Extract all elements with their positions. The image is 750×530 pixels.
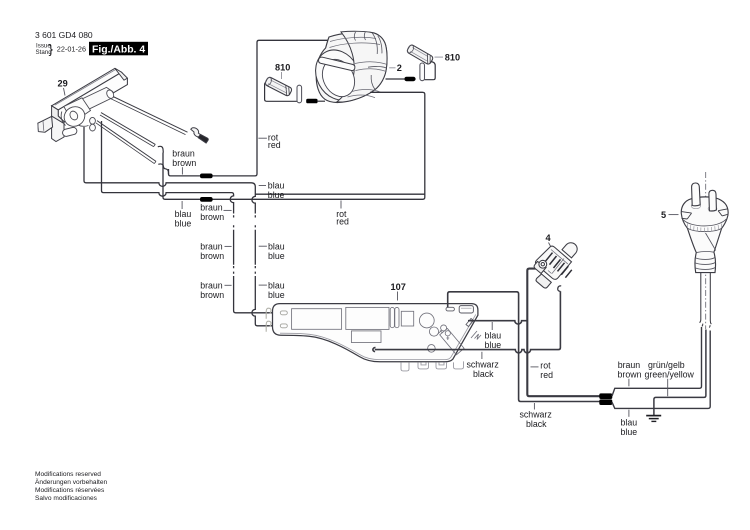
svg-text:braun: braun: [172, 149, 195, 159]
svg-text:107: 107: [391, 282, 406, 292]
svg-text:blue: blue: [175, 219, 192, 229]
svg-text:braun: braun: [200, 280, 223, 290]
svg-text:810: 810: [275, 63, 290, 73]
svg-text:Modifications réservées: Modifications réservées: [35, 487, 105, 494]
svg-text:red: red: [268, 140, 281, 150]
svg-text:29: 29: [58, 78, 68, 88]
svg-text:braun: braun: [200, 203, 223, 213]
svg-text:blau: blau: [621, 417, 638, 427]
svg-text:rot: rot: [540, 360, 551, 370]
svg-text:blue: blue: [268, 251, 285, 261]
svg-text:brown: brown: [200, 290, 224, 300]
svg-text:blau: blau: [268, 280, 285, 290]
svg-text:blau: blau: [485, 330, 502, 340]
svg-text:Fig./Abb. 4: Fig./Abb. 4: [92, 44, 145, 55]
svg-text:810: 810: [445, 53, 460, 63]
svg-text:blau: blau: [268, 241, 285, 251]
svg-text:Modifications reserved: Modifications reserved: [35, 471, 101, 478]
svg-text:Änderungen vorbehalten: Änderungen vorbehalten: [35, 478, 108, 486]
svg-text:red: red: [540, 370, 553, 380]
svg-text:brown: brown: [200, 251, 224, 261]
svg-text:2: 2: [397, 63, 402, 73]
svg-text:black: black: [526, 419, 547, 429]
svg-text:grün/gelb: grün/gelb: [648, 360, 685, 370]
svg-text:braun: braun: [200, 241, 223, 251]
svg-text:blue: blue: [485, 340, 502, 350]
svg-text:red: red: [336, 217, 349, 227]
svg-text:schwarz: schwarz: [520, 409, 552, 419]
svg-text:black: black: [473, 369, 494, 379]
svg-text:5: 5: [661, 210, 666, 220]
svg-text:blue: blue: [268, 290, 285, 300]
svg-text:blue: blue: [268, 190, 285, 200]
svg-text:braun: braun: [618, 360, 641, 370]
svg-text:22-01-26: 22-01-26: [57, 45, 86, 54]
svg-text:blue: blue: [621, 427, 638, 437]
svg-text:schwarz: schwarz: [467, 360, 499, 370]
svg-text:3 601 GD4 080: 3 601 GD4 080: [35, 30, 93, 40]
svg-text:green/yellow: green/yellow: [645, 369, 695, 379]
svg-text:Salvo modificaciones: Salvo modificaciones: [35, 495, 98, 502]
svg-text:brown: brown: [172, 158, 196, 168]
svg-text:blau: blau: [268, 181, 285, 191]
svg-text:4: 4: [546, 233, 552, 243]
svg-text:}: }: [49, 41, 54, 56]
svg-text:brown: brown: [618, 369, 642, 379]
svg-text:blau: blau: [175, 209, 192, 219]
svg-text:brown: brown: [200, 212, 224, 222]
